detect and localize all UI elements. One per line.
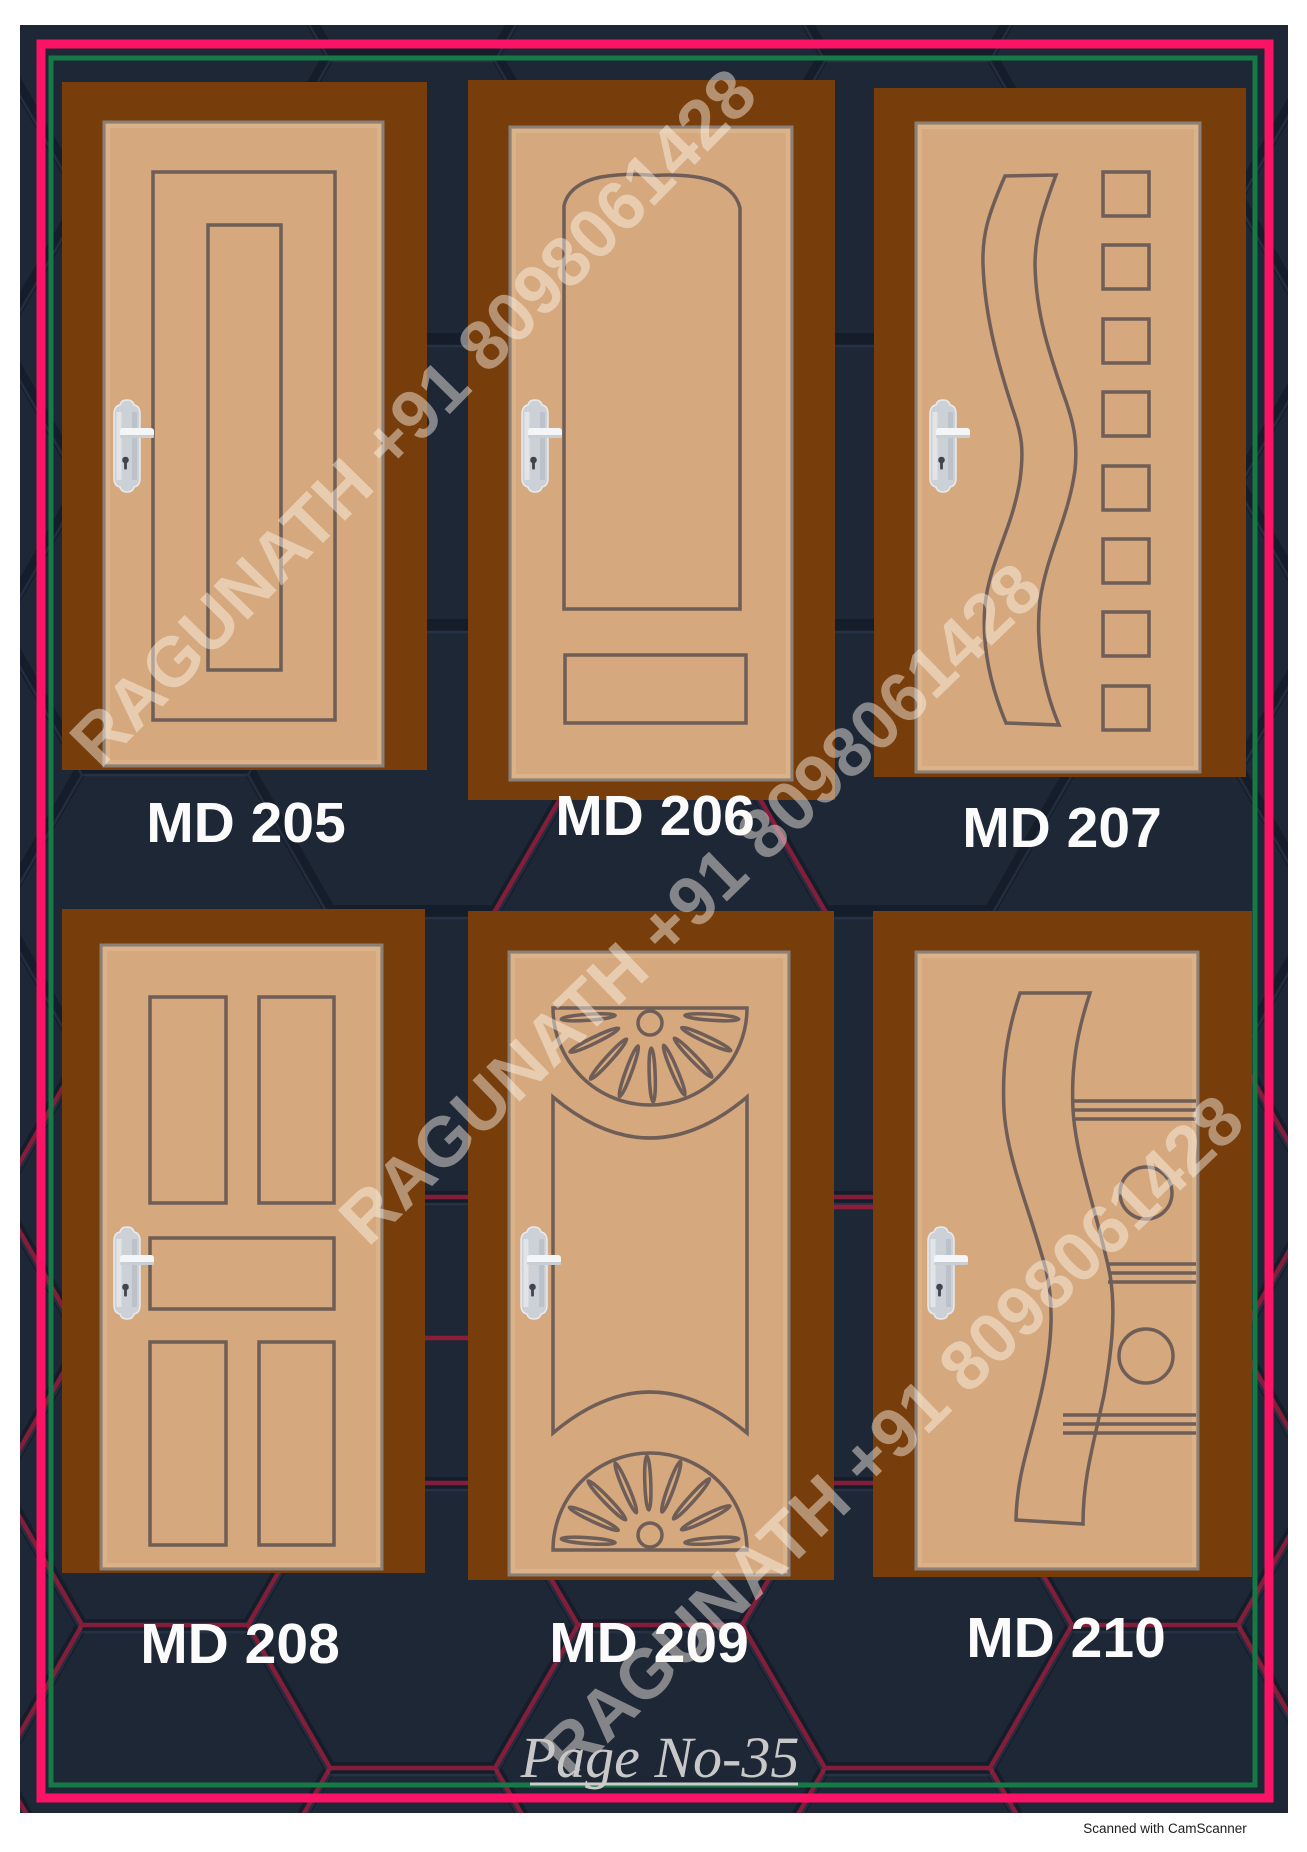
svg-text:MD 207: MD 207	[962, 796, 1162, 860]
svg-text:Page No-35: Page No-35	[520, 1725, 800, 1790]
svg-text:MD 208: MD 208	[140, 1612, 340, 1676]
svg-text:MD 210: MD 210	[966, 1606, 1166, 1670]
svg-text:MD 205: MD 205	[146, 791, 346, 855]
svg-text:Scanned with CamScanner: Scanned with CamScanner	[1083, 1821, 1247, 1836]
